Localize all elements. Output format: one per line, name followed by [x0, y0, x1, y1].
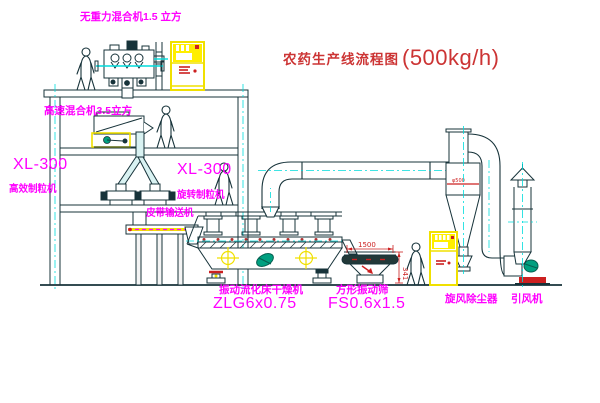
- cyclone-size-label: φ500: [452, 178, 465, 184]
- person-figure: [77, 48, 95, 90]
- label-dryer-name: 振动流化床干燥机: [219, 285, 303, 296]
- control-cabinet-1: [171, 42, 204, 90]
- fan-base: [519, 277, 546, 283]
- label-cyclone: 旋风除尘器: [445, 294, 498, 305]
- induced-draft-fan: [504, 256, 550, 284]
- hatch-strip: [200, 242, 336, 248]
- dim-width-text: 1500: [358, 241, 376, 249]
- exhaust-duct: [258, 162, 452, 217]
- gravity-free-mixer: [95, 41, 168, 98]
- label-granulator-mid-name: 旋转制粒机: [177, 191, 225, 201]
- down-chute: [133, 212, 146, 226]
- label-belt-conveyor: 皮带输送机: [146, 209, 194, 219]
- label-granulator-left-name: 高效制粒机: [9, 185, 57, 195]
- vibrating-screen: [342, 252, 398, 283]
- label-gravity-free-mixer: 无重力混合机1.5 立方: [80, 12, 182, 23]
- label-screen-name: 方形振动筛: [336, 285, 389, 296]
- title-capacity: (500kg/h): [402, 47, 499, 69]
- title-chinese: 农药生产线流程图: [283, 53, 399, 70]
- page-title: 农药生产线流程图 (500kg/h): [283, 47, 499, 69]
- label-high-speed-mixer: 高速混合机3.5立方: [44, 106, 132, 117]
- person-figure: [157, 106, 175, 148]
- label-screen-model: FS0.6x1.5: [328, 296, 405, 312]
- dryer-support-right: [313, 270, 331, 283]
- control-cabinet-2: [430, 232, 457, 285]
- label-granulator-mid-model: XL-300: [177, 162, 232, 178]
- roof-slab: [44, 90, 248, 97]
- dryer-inlet-connectors: [204, 216, 333, 235]
- y-chute-right: [138, 157, 159, 184]
- label-fan: 引风机: [511, 294, 543, 305]
- diagram-page: φ500: [0, 0, 600, 403]
- granulator-right: [135, 184, 175, 205]
- indicator-lamp: [451, 236, 454, 239]
- indicator-lamp: [195, 45, 199, 49]
- label-granulator-left-model: XL-300: [13, 157, 68, 173]
- dryer-support-left: [207, 272, 225, 283]
- fluid-bed-dryer: [186, 212, 357, 283]
- label-dryer-model: ZLG6x0.75: [213, 296, 297, 312]
- second-floor-slab: [60, 148, 238, 155]
- dim-height-text: 341: [401, 267, 409, 280]
- y-chute-left: [118, 157, 143, 184]
